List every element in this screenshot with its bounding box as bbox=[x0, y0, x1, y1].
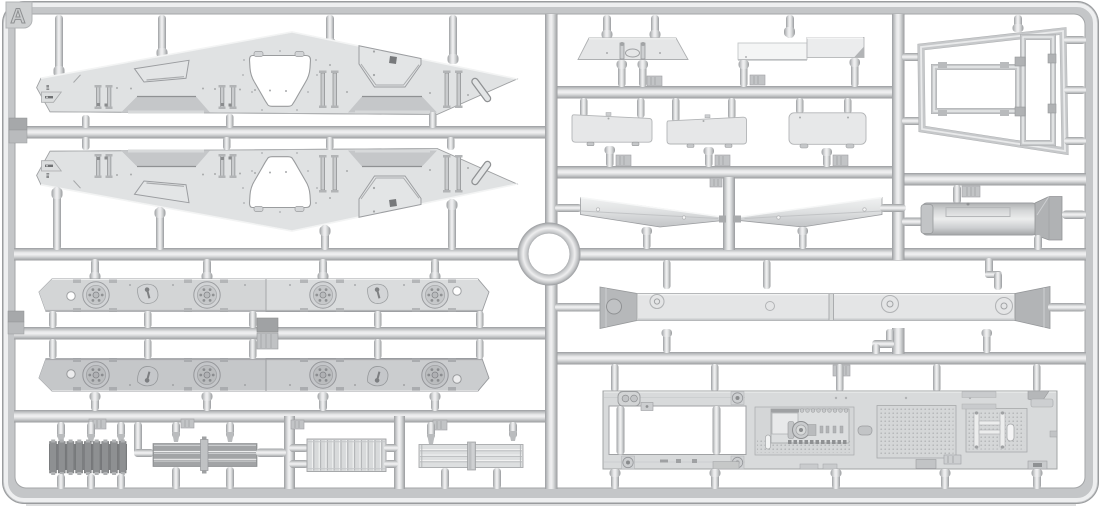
svg-text:A: A bbox=[10, 5, 25, 28]
